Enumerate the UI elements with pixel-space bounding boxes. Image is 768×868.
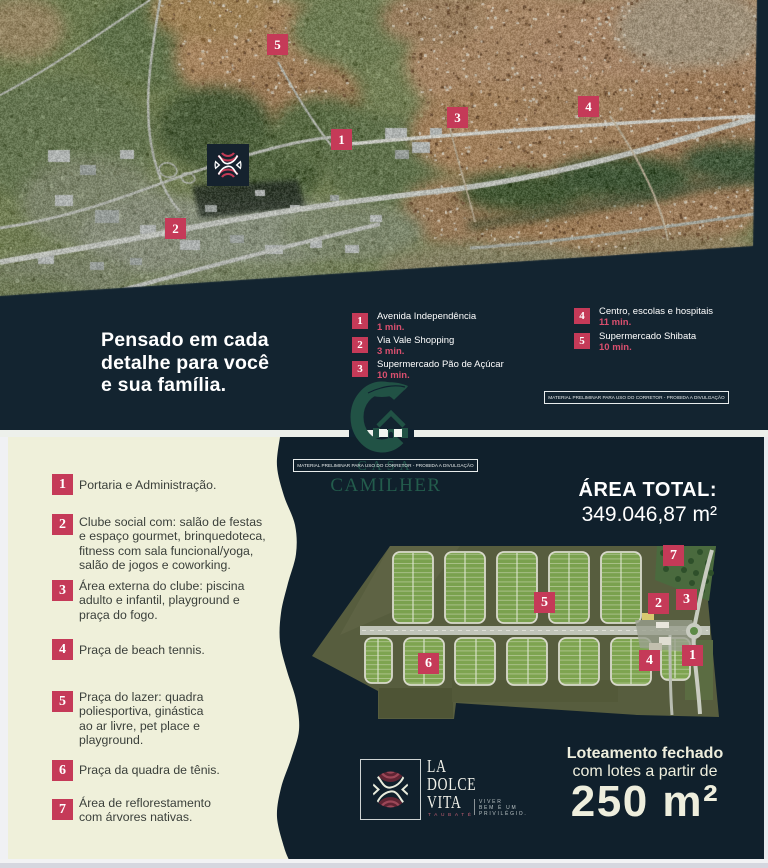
svg-text:CAMILHER: CAMILHER xyxy=(330,475,441,496)
